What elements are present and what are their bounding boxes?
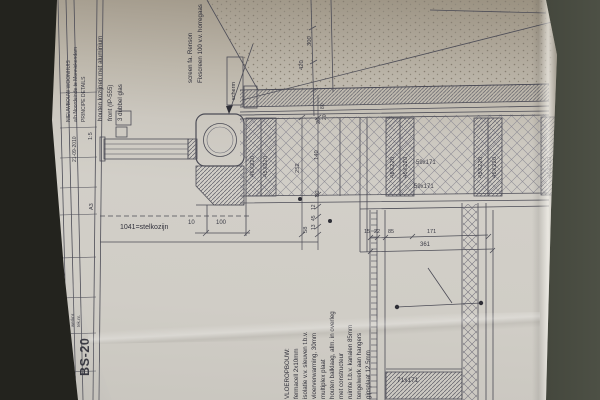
beam-label: 45X220 [403, 156, 409, 178]
dim-100: 100 [216, 220, 226, 226]
dim-80: 80 [315, 191, 321, 197]
dim-22: 22 [374, 229, 380, 235]
dim-140: 140 [314, 150, 320, 160]
screen-note: screen fa. Renson Fixscreen 100 v.v. hor… [186, 0, 205, 83]
beam-label: 45X220 [263, 155, 269, 177]
beam-label: 46X220 [390, 156, 396, 178]
dim-58: 58 [303, 227, 309, 233]
date-value: 21-09-2010 [72, 136, 78, 162]
footer-beam-label: 71x171 [397, 377, 418, 384]
joist-label: 59x171 [414, 184, 434, 190]
screen-roller-circle [204, 124, 237, 157]
scherm-label: scherm [231, 82, 237, 100]
screen-note-line: Fixscreen 100 v.v. horregaas [196, 0, 206, 83]
dim-420: 420 [299, 60, 305, 70]
dim-45: 45 [311, 215, 317, 221]
paper-size-value: A3 [89, 203, 95, 210]
drawing-paper: houten kozijnen met aluminium front (IP-… [0, 0, 600, 400]
screen-note-line: screen fa. Renson [186, 0, 196, 83]
window-note-line: front (IP-555) [106, 0, 116, 121]
photo-scene: houten kozijnen met aluminium front (IP-… [0, 0, 600, 400]
dim-10: 10 [188, 220, 195, 226]
window-note: houten kozijnen met aluminium front (IP-… [96, 0, 126, 121]
beam-label: 46X220 [250, 155, 256, 177]
stelkozijn-label: 1041=stelkozijn [120, 224, 168, 231]
dim-171: 171 [427, 229, 436, 235]
project-line: PRINCIPE DETAILS [81, 77, 87, 122]
dim-13: 13 [311, 224, 317, 230]
dim-300: 300 [307, 36, 313, 46]
dim-252: 252 [295, 163, 301, 173]
joist-label: 59x171 [416, 160, 436, 166]
project-line: a/h Noordeinde te Monnickendam [73, 47, 79, 122]
timber-lintel-hatch [196, 166, 244, 205]
project-line: NIEUWBOUW WOONHUIS [66, 60, 72, 122]
dim-85: 85 [388, 229, 394, 235]
scale-value: 1:5 [88, 132, 94, 140]
window-note-line: houten kozijnen met aluminium [96, 0, 106, 121]
dim-80-upper: 80 [320, 103, 326, 109]
leader-arrowhead [226, 105, 233, 114]
dim-12: 12 [311, 204, 317, 210]
dim-361: 361 [420, 242, 430, 248]
floor-beam-zone [240, 95, 558, 252]
beam-label: 45X220 [478, 156, 484, 178]
dim-20-upper: 20 [322, 114, 328, 120]
dim-20: 20 [316, 118, 322, 124]
beam-label: 45X220 [492, 156, 498, 178]
dim-15: 15 [364, 229, 370, 235]
window-note-line: 3 dubbel glas [116, 0, 126, 121]
